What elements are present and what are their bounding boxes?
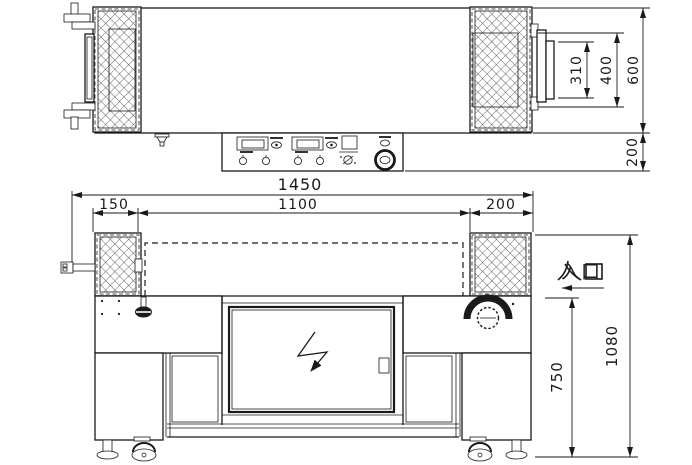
right-apron [403,296,531,353]
cabinet-door [229,307,394,412]
temp-controller-2 [292,137,323,152]
left-recessed-panel [172,356,218,422]
crosshatch-mesh [100,237,136,292]
electrical-cabinet [222,296,403,425]
front-clamp-handle [61,262,95,273]
dim-150-label: 150 [99,197,129,213]
left-leveling-foot [97,440,118,459]
control-panel [222,133,403,171]
right-side-plate-outer [537,30,546,102]
conveyor-tunnel-outline [145,243,463,296]
crosshatch-mesh [475,11,527,128]
clamp-handle-top [64,3,95,29]
temp-controller-1 [237,137,268,152]
dim-750-label: 750 [548,361,566,393]
left-apron [95,296,222,353]
front-right-roller-block [470,233,531,296]
clamp-handle-bottom [64,103,95,129]
dim-200-front-label: 200 [486,197,516,213]
drain-valve [155,134,169,146]
drawing-canvas: 310 400 600 200 1450 150 1100 200 [0,0,692,465]
top-view-body [95,8,531,133]
dim-200-top-label: 200 [625,137,641,167]
entrance-label-text: 入口 [561,261,601,283]
dim-1080-label: 1080 [603,325,621,367]
right-leg [462,353,531,440]
entrance-label: 入口 [558,261,604,288]
latch-tab [135,259,142,272]
front-view: 入口 750 1080 [61,233,638,461]
right-side-plate-inner [546,41,554,99]
left-roller-unit [64,3,141,132]
front-left-roller-block [95,233,142,296]
dim-1100-label: 1100 [278,197,318,213]
left-leg [95,353,163,440]
right-leveling-foot [506,440,527,459]
top-view: 310 400 600 200 [64,3,650,171]
left-side-plate [85,34,94,102]
right-roller-unit [470,7,554,132]
crosshatch-mesh [98,11,136,128]
right-recessed-panel [406,356,452,422]
engineering-drawing: 310 400 600 200 1450 150 1100 200 [0,0,692,465]
dim-1450-label: 1450 [278,175,323,194]
dim-600-label: 600 [626,55,642,85]
door-handle [379,358,389,373]
dim-310-label: 310 [569,55,585,85]
crosshatch-mesh [475,237,526,292]
dim-400-label: 400 [599,55,615,85]
